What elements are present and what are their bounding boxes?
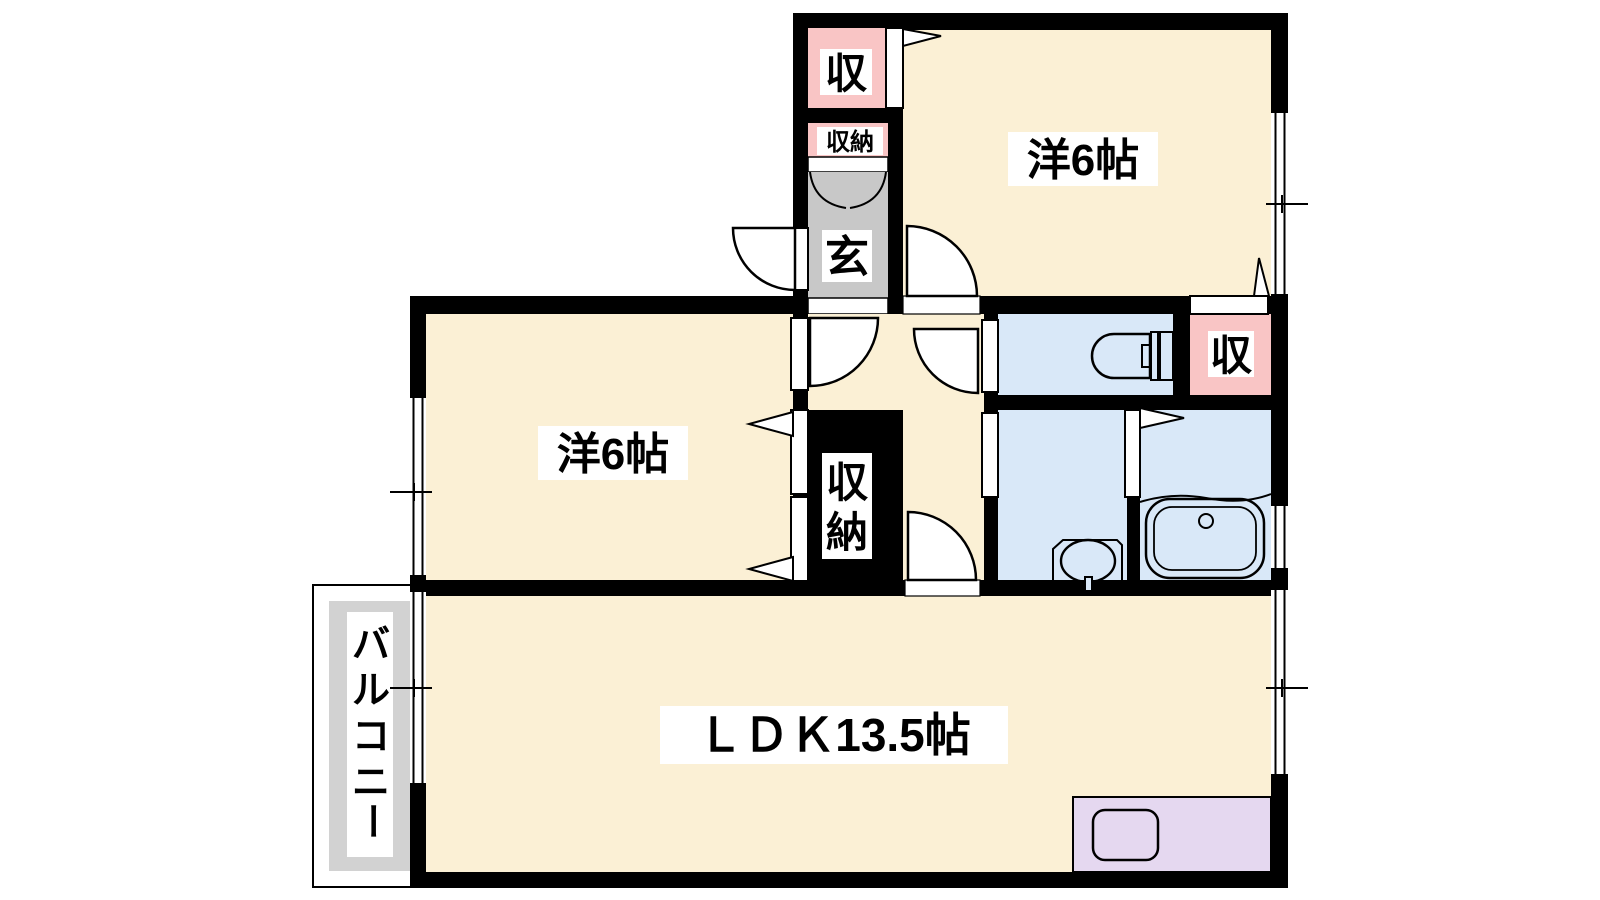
doorway-bedroom-top (903, 296, 980, 314)
room-bathroom (1140, 410, 1271, 580)
room-toilet (998, 314, 1173, 395)
label-ldk: ＬＤＫ13.5帖 (697, 709, 971, 761)
label-closet-right: 収 (1210, 332, 1252, 379)
closet-right-door-panel (1190, 296, 1268, 314)
balcony-label-char: バ (352, 624, 390, 666)
toilet-door-leaf (982, 320, 998, 392)
label-bedroom-left: 洋6帖 (557, 430, 669, 479)
balcony: バ ル コ ニ ー (313, 585, 414, 887)
label-entrance: 玄 (825, 233, 869, 282)
shoe-storage-front (808, 157, 888, 172)
balcony-label-char: ー (350, 802, 392, 840)
floor-plan: バ ル コ ニ ー (0, 0, 1600, 900)
window-bedroom-left (390, 398, 432, 575)
label-storage-char: 収 (826, 459, 868, 506)
balcony-label-char: ニ (352, 762, 390, 804)
label-shoe-storage: 収納 (826, 128, 874, 156)
window-ldk-right (1266, 590, 1308, 774)
doorway-ldk (905, 580, 980, 596)
bathroom-door-leaf (1125, 410, 1140, 497)
bedroom-left-door-leaf (791, 318, 808, 390)
label-closet-top: 収 (825, 50, 867, 97)
window-bedroom-top (1266, 113, 1308, 294)
closet-top-door-panel (886, 28, 903, 108)
door-swing-front-entrance (733, 228, 795, 290)
balcony-label-char: コ (352, 716, 390, 758)
entrance-step (808, 298, 888, 314)
label-storage-char: 納 (826, 509, 868, 556)
floor-plan-canvas: バ ル コ ニ ー (0, 0, 1600, 900)
window-bathroom (1271, 506, 1288, 568)
washroom-door-opening (982, 413, 998, 497)
label-bedroom-top: 洋6帖 (1027, 136, 1139, 185)
balcony-label-char: ル (352, 670, 390, 712)
